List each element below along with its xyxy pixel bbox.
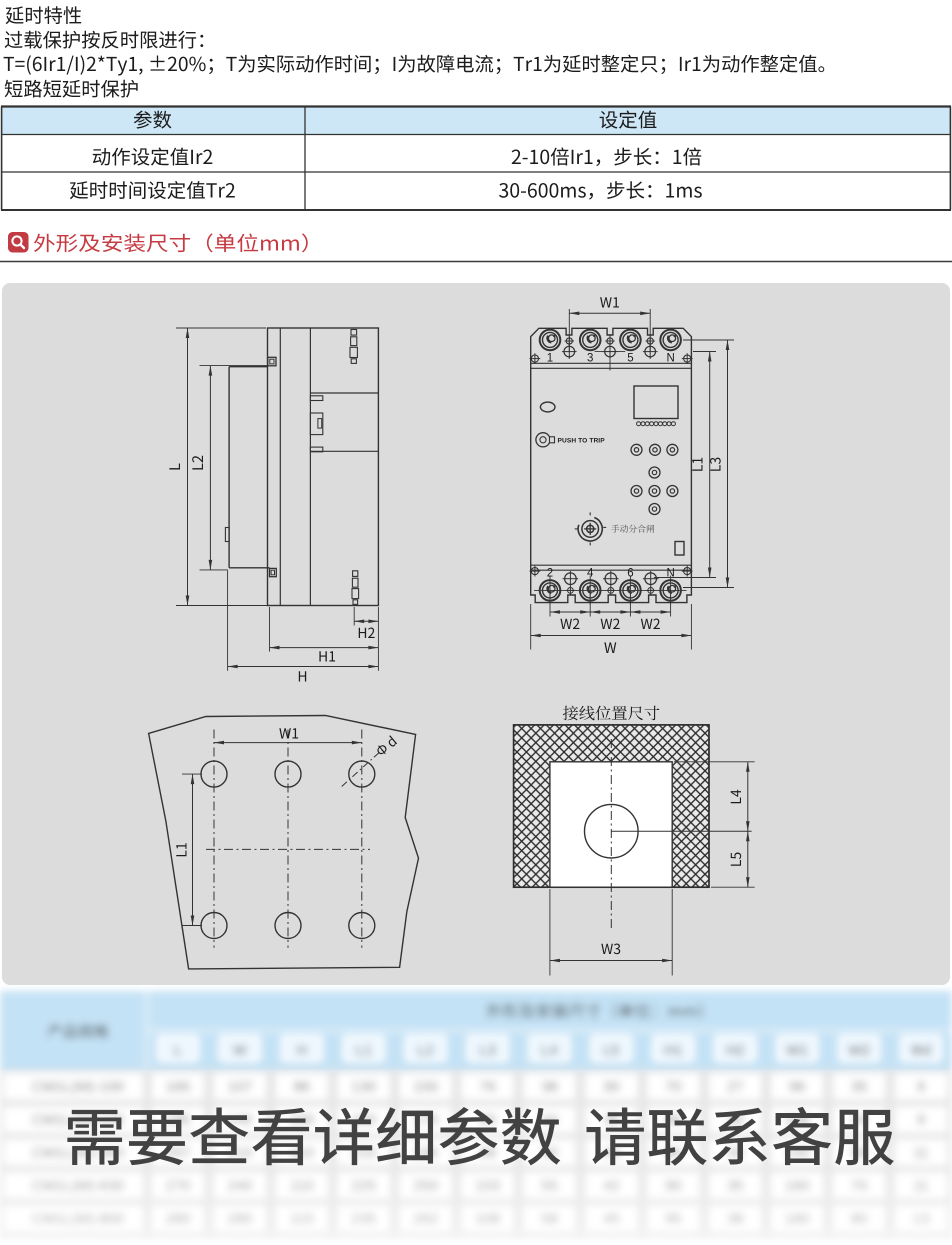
svg-text:L2: L2 xyxy=(418,1043,434,1059)
svg-text:4: 4 xyxy=(587,568,594,580)
svg-text:1: 1 xyxy=(547,353,553,365)
svg-text:5: 5 xyxy=(627,353,633,365)
svg-text:L1: L1 xyxy=(356,1043,372,1059)
svg-text:W2: W2 xyxy=(848,1043,870,1059)
svg-text:L4: L4 xyxy=(541,1043,557,1059)
svg-text:PUSH TO TRIP: PUSH TO TRIP xyxy=(558,438,606,445)
svg-text:L: L xyxy=(174,1043,182,1059)
svg-text:L5: L5 xyxy=(603,1043,619,1059)
svg-text:L3: L3 xyxy=(480,1043,496,1059)
svg-text:3: 3 xyxy=(587,353,593,365)
svg-text:N: N xyxy=(666,353,674,365)
svg-text:H2: H2 xyxy=(726,1043,745,1059)
svg-text:H: H xyxy=(297,1043,307,1059)
svg-text:W: W xyxy=(233,1043,247,1059)
svg-text:2: 2 xyxy=(547,568,553,580)
svg-text:H1: H1 xyxy=(664,1043,683,1059)
svg-text:W1: W1 xyxy=(786,1043,808,1059)
svg-text:6: 6 xyxy=(627,568,633,580)
